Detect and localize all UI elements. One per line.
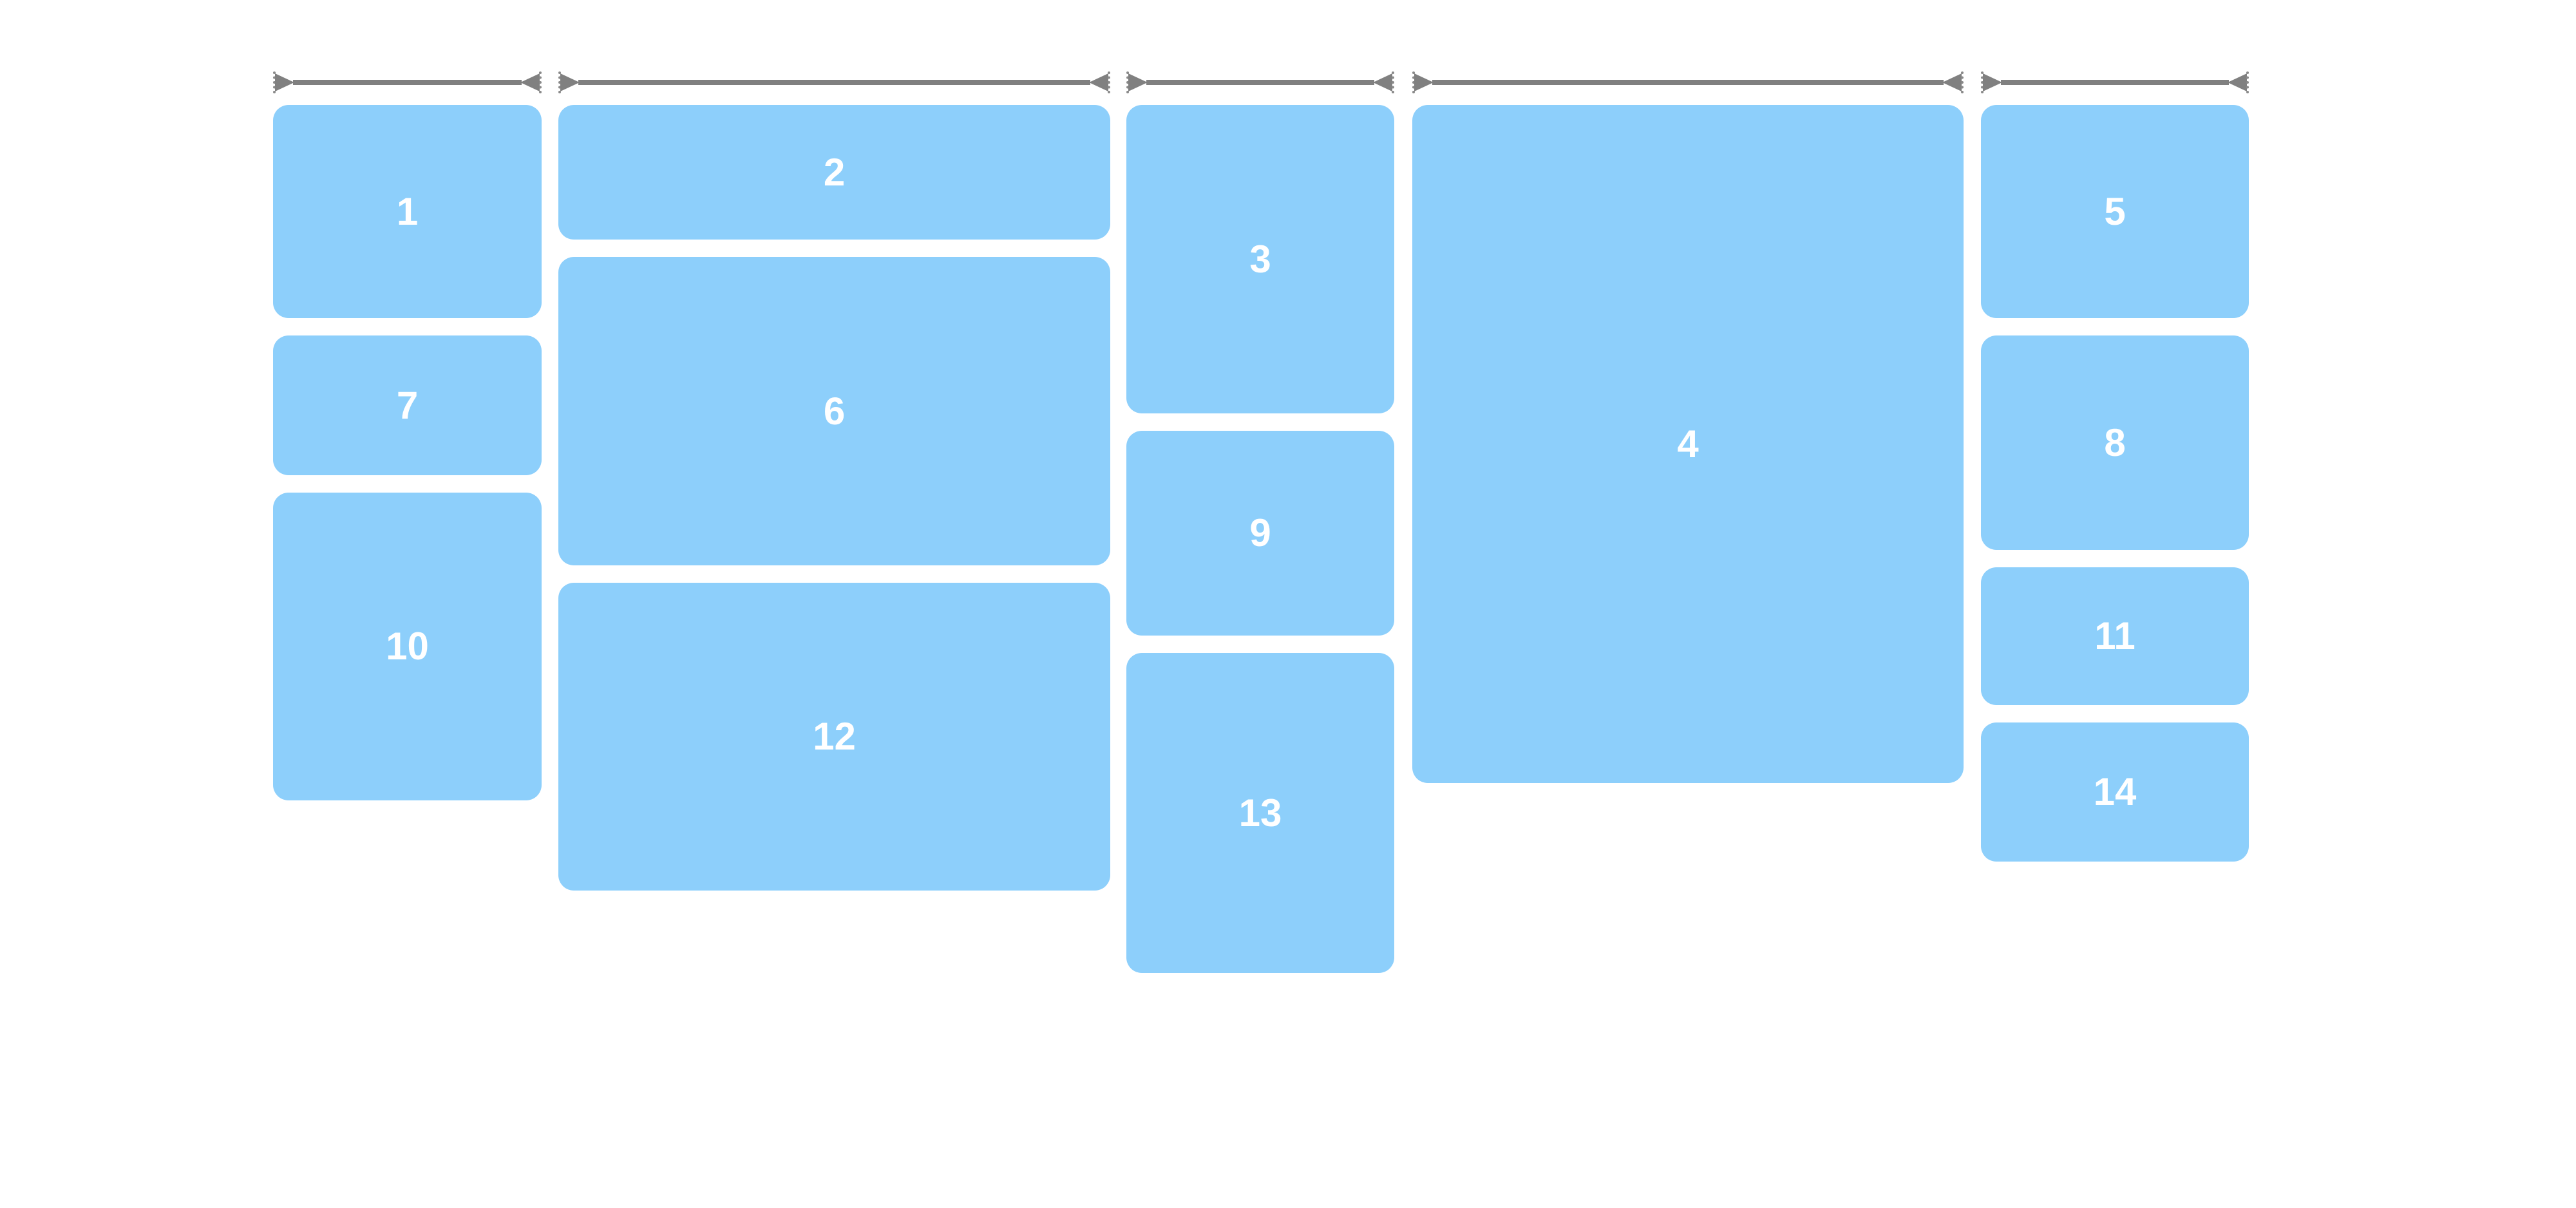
dimension-arrow-left-icon: [1089, 73, 1108, 91]
column-width-ruler-5: [1981, 71, 2249, 93]
masonry-item-5: 5: [1981, 105, 2249, 318]
ruler-end-tick: [1108, 71, 1110, 93]
masonry-item-4: 4: [1412, 105, 1964, 783]
dimension-arrow-left-icon: [1942, 73, 1962, 91]
masonry-item-label: 10: [386, 627, 429, 666]
column-width-ruler-1: [273, 71, 542, 93]
ruler-end-tick: [1961, 71, 1964, 93]
masonry-item-label: 6: [824, 392, 845, 431]
masonry-item-3: 3: [1126, 105, 1394, 413]
masonry-item-label: 7: [397, 386, 418, 425]
masonry-item-label: 13: [1239, 794, 1282, 833]
dimension-arrow-right-icon: [1128, 73, 1148, 91]
masonry-item-label: 9: [1249, 514, 1271, 552]
dimension-arrow-right-icon: [1414, 73, 1434, 91]
dimension-arrow-left-icon: [2228, 73, 2247, 91]
masonry-item-label: 11: [2094, 617, 2135, 656]
ruler-line: [2001, 80, 2229, 85]
masonry-item-9: 9: [1126, 431, 1394, 636]
dimension-arrow-right-icon: [275, 73, 294, 91]
column-width-ruler-4: [1412, 71, 1964, 93]
ruler-end-tick: [2246, 71, 2249, 93]
masonry-item-label: 8: [2104, 424, 2125, 462]
masonry-item-7: 7: [273, 335, 542, 475]
masonry-item-2: 2: [558, 105, 1110, 240]
dimension-arrow-left-icon: [520, 73, 540, 91]
dimension-arrow-left-icon: [1373, 73, 1392, 91]
ruler-end-tick: [539, 71, 542, 93]
masonry-item-11: 11: [1981, 567, 2249, 705]
ruler-line: [578, 80, 1090, 85]
masonry-item-13: 13: [1126, 653, 1394, 973]
masonry-item-14: 14: [1981, 722, 2249, 862]
masonry-item-12: 12: [558, 583, 1110, 891]
masonry-item-6: 6: [558, 257, 1110, 565]
masonry-item-label: 1: [397, 193, 418, 231]
masonry-item-8: 8: [1981, 335, 2249, 550]
masonry-item-10: 10: [273, 493, 542, 800]
masonry-item-label: 2: [824, 153, 845, 192]
masonry-item-label: 5: [2104, 193, 2125, 231]
masonry-item-label: 12: [813, 717, 856, 756]
ruler-end-tick: [1392, 71, 1394, 93]
masonry-item-label: 14: [2094, 773, 2137, 811]
masonry-item-label: 4: [1677, 425, 1698, 464]
dimension-arrow-right-icon: [560, 73, 580, 91]
column-width-ruler-3: [1126, 71, 1394, 93]
masonry-item-1: 1: [273, 105, 542, 318]
ruler-line: [1432, 80, 1944, 85]
ruler-line: [293, 80, 522, 85]
column-width-ruler-2: [558, 71, 1110, 93]
dimension-arrow-right-icon: [1983, 73, 2002, 91]
ruler-line: [1146, 80, 1374, 85]
masonry-item-label: 3: [1249, 240, 1271, 279]
masonry-layout-figure: 1710261239134581114: [0, 0, 2576, 1208]
